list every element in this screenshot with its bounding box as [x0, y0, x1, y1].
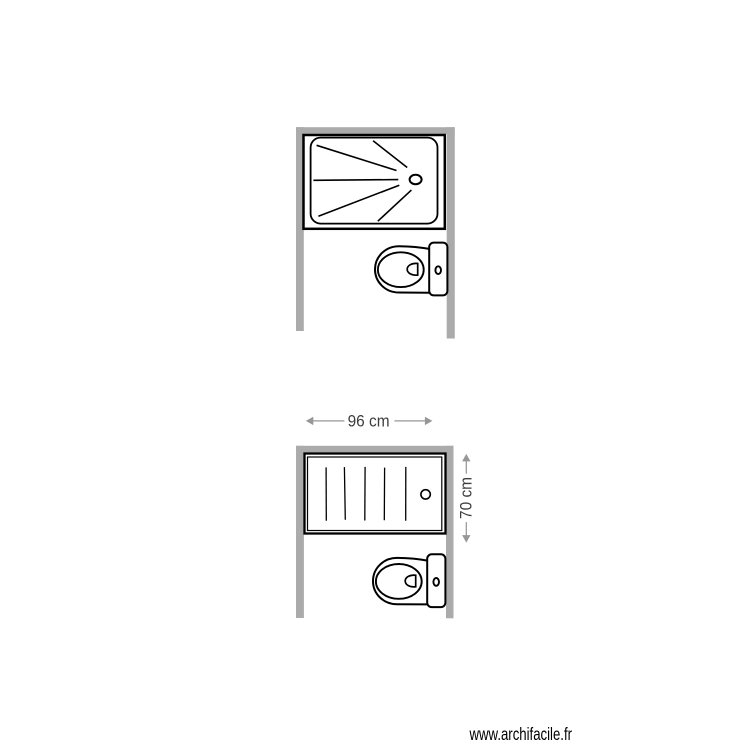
svg-text:96 cm: 96 cm	[348, 411, 390, 430]
svg-text:www.archifacile.fr: www.archifacile.fr	[469, 724, 572, 744]
svg-text:70 cm: 70 cm	[457, 477, 476, 519]
